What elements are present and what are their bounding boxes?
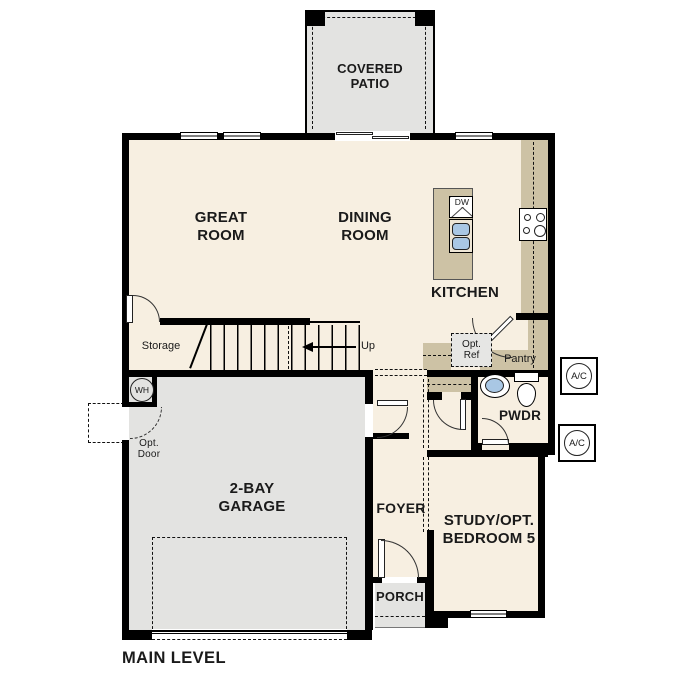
dining-room-label: DINING ROOM	[325, 207, 405, 247]
wall-garage-top	[122, 370, 373, 377]
burner-bottom-left	[523, 227, 530, 234]
garage-door-opening	[152, 629, 347, 640]
opt-ref: Opt. Ref	[451, 333, 492, 367]
study-opening-dash-right	[428, 457, 429, 532]
counter-centerline	[533, 142, 534, 368]
ac-unit-2-circle: A/C	[564, 430, 590, 456]
garage-parking-outline	[152, 537, 347, 639]
ac-unit-1: A/C	[560, 357, 598, 395]
covered-patio-label: COVERED PATIO	[330, 58, 410, 94]
opt-door-label: Opt. Door	[131, 436, 167, 462]
dishwasher-label: DW	[451, 197, 473, 207]
kitchen-hall-opening-dash-bottom	[375, 375, 427, 376]
burner-top-right	[536, 213, 545, 222]
wall-nook-stub-left	[427, 392, 442, 400]
study-label: STUDY/OPT. BEDROOM 5	[438, 510, 540, 550]
cooktop	[519, 208, 547, 241]
wall-nook-right	[471, 377, 478, 450]
ac-unit-2-label: A/C	[569, 438, 585, 449]
opt-door-opening	[122, 407, 129, 440]
wall-garage-right-upper	[365, 377, 373, 404]
kitchen-sink-basin-top	[452, 223, 470, 236]
stair-up-arrow-head	[302, 342, 313, 352]
garage-entry-door-panel	[377, 400, 408, 406]
ac-unit-1-circle: A/C	[566, 363, 592, 389]
hall-opening-dash-left	[423, 379, 424, 448]
storage-door-panel	[126, 295, 133, 323]
stair-rail	[310, 321, 360, 323]
side-counter-dash	[423, 355, 451, 356]
garage-label: 2-BAY GARAGE	[196, 478, 308, 518]
garage-door-panel	[152, 630, 347, 634]
water-heater-label: WH	[135, 385, 149, 395]
kitchen-sink-basin-bottom	[452, 237, 470, 250]
foyer-label: FOYER	[375, 500, 427, 516]
burner-top-left	[524, 214, 531, 221]
powder-sink-basin	[485, 378, 504, 393]
burner-bottom-right	[534, 225, 546, 237]
floor-plan: DW WH A/C A/C Opt. Ref COVERED PATIO GRE…	[0, 0, 687, 687]
wall-garage-right-lower	[365, 437, 373, 630]
wall-right-upper	[548, 133, 555, 455]
porch-corner-block	[425, 613, 448, 628]
pantry-label: Pantry	[498, 352, 542, 366]
water-heater: WH	[130, 378, 154, 402]
kitchen-hall-opening-dash-top	[375, 369, 427, 370]
opt-door-stoop-outline	[88, 403, 124, 443]
wall-porch-right	[425, 583, 433, 614]
wall-powder-bottom-left	[471, 443, 482, 450]
plan-title: MAIN LEVEL	[122, 649, 292, 669]
window-great-room-2	[223, 132, 261, 140]
powder-sink	[480, 374, 510, 398]
up-label: Up	[357, 339, 379, 353]
wall-stair-top	[160, 318, 310, 325]
sliding-door-panel-left	[336, 132, 373, 135]
hall-opening-dash-right	[428, 379, 429, 448]
wall-left	[122, 133, 129, 640]
ac-unit-1-label: A/C	[571, 371, 587, 382]
wall-kitchen-bottom	[516, 313, 555, 320]
ac-unit-2: A/C	[558, 424, 596, 462]
porch-step-dash	[375, 616, 425, 617]
patio-post-left	[305, 10, 325, 26]
kitchen-label: KITCHEN	[425, 284, 505, 302]
stair-dashed-tread	[288, 326, 289, 369]
great-room-label: GREAT ROOM	[178, 207, 264, 247]
wall-study-top	[427, 450, 548, 457]
sliding-door	[335, 131, 410, 141]
wall-powder-bottom-right	[509, 443, 548, 450]
study-opening-dash-left	[423, 457, 424, 532]
toilet-tank	[514, 372, 539, 382]
window-dining	[455, 132, 493, 140]
sliding-door-panel-right	[372, 136, 409, 139]
window-great-room-1	[180, 132, 218, 140]
storage-label: Storage	[138, 339, 184, 353]
garage-door-dash	[152, 639, 347, 640]
kitchen-side-counter	[423, 343, 451, 370]
patio-post-right	[415, 10, 435, 26]
nook-counter-dash	[427, 384, 472, 385]
kitchen-sink	[449, 219, 473, 253]
window-study	[470, 610, 507, 618]
dishwasher: DW	[449, 196, 473, 218]
powder-label: PWDR	[496, 408, 544, 424]
opt-ref-label: Opt. Ref	[459, 339, 485, 362]
porch-label: PORCH	[376, 589, 424, 604]
stair-up-arrow-line	[312, 346, 356, 348]
